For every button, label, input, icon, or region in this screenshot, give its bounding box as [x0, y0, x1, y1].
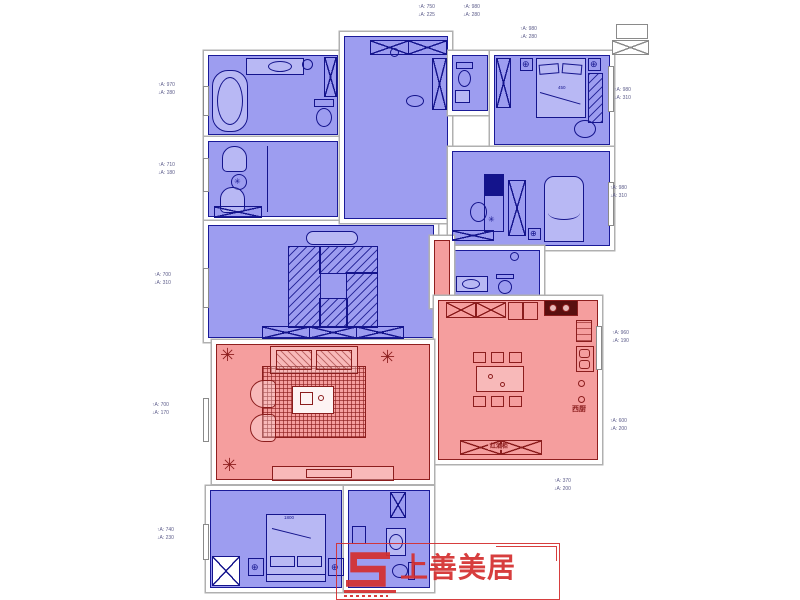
wc-basin — [455, 90, 470, 103]
sink-basin-2 — [579, 360, 590, 369]
floorplan: ✳ ⊕ ⊕ 450 ✳ ⊕ ✳ ✳ ✳ — [0, 0, 800, 600]
west-kitchen-label: 西厨 — [572, 406, 586, 413]
dim-annotation: ↑A: 980↓A: 280 — [520, 25, 537, 41]
pillow — [562, 63, 583, 75]
stove-burner — [562, 304, 570, 312]
south-bath-shelf — [352, 526, 366, 544]
dim-annotation: ↑A: 970↓A: 280 — [158, 81, 175, 97]
kitchen-cabinet-door-2 — [523, 302, 538, 320]
dining-chair — [473, 352, 486, 363]
dining-chair — [491, 352, 504, 363]
pillow — [270, 556, 295, 567]
bath-light — [510, 252, 519, 261]
brand-name: 上善美居 — [400, 551, 516, 585]
kitchen-cabinet-door-1 — [508, 302, 523, 320]
south-bath-hatch — [390, 492, 406, 518]
east-toilet-tank — [496, 274, 514, 279]
corridor-basin — [406, 95, 424, 107]
wc-toilet-bowl — [458, 70, 471, 87]
dining-chair — [509, 396, 522, 407]
corridor-closet-2 — [408, 40, 447, 55]
window-left-4 — [203, 398, 209, 442]
window-right-3 — [596, 326, 602, 370]
headboard — [266, 574, 326, 582]
wardrobe-hatch-1 — [262, 326, 310, 339]
brand-subtext-bar — [344, 595, 388, 597]
south-double-bed — [266, 514, 326, 582]
dim-annotation: ↑A: 980↓A: 310 — [614, 86, 631, 102]
east-cabinet-hatch — [452, 230, 494, 241]
window-left-1 — [203, 86, 209, 116]
downlight-icon: ⊕ — [530, 230, 537, 238]
cabinet-hatch-strip — [214, 206, 262, 218]
shower-head — [302, 59, 313, 70]
dining-chair — [491, 396, 504, 407]
dim-annotation: ↑A: 600↓A: 200 — [610, 417, 627, 433]
armchair-2 — [250, 414, 276, 442]
table-plant-icon: ✳ — [234, 178, 241, 186]
fridge — [576, 320, 592, 342]
sofa-cushion-2 — [316, 350, 352, 370]
flower-icon: ✳ — [488, 216, 495, 224]
wardrobe-hatch-2 — [309, 326, 357, 339]
dim-annotation: ↑A: 980↓A: 310 — [610, 184, 627, 200]
ac-platform-hatch — [612, 40, 649, 55]
pillow — [297, 556, 322, 567]
desk-hutch — [484, 174, 504, 196]
wine-cabinet-label: 红酒柜 — [488, 444, 510, 450]
room-red-corridor — [434, 240, 450, 304]
plant-icon: ✳ — [222, 456, 237, 474]
wall-light-1 — [578, 380, 585, 387]
east-wardrobe-hatch — [508, 180, 526, 236]
kitchen-cabinet-hatch-1 — [446, 302, 476, 318]
wc-toilet-tank — [456, 62, 473, 69]
east-bath-sink — [462, 279, 480, 289]
closet-island-4 — [319, 298, 348, 328]
closet-island-3 — [346, 272, 378, 328]
sink-basin-1 — [579, 349, 590, 358]
dim-annotation: ↑A: 370↓A: 200 — [554, 477, 571, 493]
window-left-5 — [203, 524, 209, 560]
downlight-icon: ⊕ — [590, 60, 598, 69]
dim-annotation: ↑A: 700↓A: 310 — [154, 271, 171, 287]
plant-icon: ✳ — [220, 346, 235, 364]
closet-island-1 — [288, 246, 321, 328]
plant-icon: ✳ — [380, 348, 395, 366]
wall-light-2 — [578, 396, 585, 403]
ne-side-cabinet — [588, 73, 603, 123]
dining-chair — [473, 396, 486, 407]
window-left-2 — [203, 158, 209, 192]
downlight-icon: ⊕ — [251, 563, 259, 572]
brand-mark-icon — [340, 548, 396, 592]
brand-watermark: 上善美居 — [336, 543, 560, 600]
downlight-icon: ⊕ — [522, 60, 530, 69]
table-setting-dot — [488, 374, 493, 379]
pillow — [539, 63, 560, 75]
dining-table — [476, 366, 524, 392]
bed-size-label: 1800 — [284, 516, 294, 521]
dim-annotation: ↑A: 980↓A: 280 — [463, 3, 480, 19]
coffee-table — [292, 386, 334, 414]
toilet-bowl — [316, 108, 332, 127]
stove-burner — [549, 304, 557, 312]
south-wardrobe — [212, 556, 240, 586]
corridor-closet-3 — [432, 58, 447, 110]
dim-annotation: ↑A: 750↓A: 225 — [418, 3, 435, 19]
bath-cabinet-hatch — [324, 57, 337, 97]
window-left-3 — [203, 268, 209, 308]
dining-chair — [509, 352, 522, 363]
east-toilet-bowl — [498, 280, 512, 294]
tv-panel — [306, 469, 352, 478]
ne-chair — [574, 120, 596, 138]
lounge-chair-1 — [222, 146, 247, 172]
ne-wardrobe-hatch — [496, 58, 511, 108]
sofa-cushion-1 — [276, 350, 312, 370]
dim-annotation: ↑A: 710↓A: 180 — [158, 161, 175, 177]
toilet-tank — [314, 99, 334, 107]
dim-annotation: ↑A: 700↓A: 170 — [152, 401, 169, 417]
bed-arc-line — [548, 206, 580, 220]
cloakroom-bench — [306, 231, 358, 245]
coffee-table-tray — [300, 392, 313, 405]
brand-subtext-bar — [344, 590, 396, 593]
closet-island-2 — [319, 246, 378, 274]
coffee-table-dish — [318, 395, 324, 401]
wardrobe-hatch-3 — [356, 326, 404, 339]
ceiling-light — [390, 48, 399, 57]
vanity-sink — [268, 61, 292, 72]
armchair-1 — [250, 380, 276, 408]
desk-chair — [470, 202, 487, 222]
kitchen-cabinet-hatch-2 — [476, 302, 506, 318]
table-setting-dot — [500, 382, 505, 387]
dim-annotation: ↑A: 960↓A: 190 — [612, 329, 629, 345]
dim-annotation: ↑A: 740↓A: 230 — [157, 526, 174, 542]
balcony-outline — [616, 24, 648, 39]
dimension-line — [267, 146, 268, 212]
bathtub-basin — [217, 77, 243, 125]
bedside-dim-label: 450 — [558, 86, 566, 91]
